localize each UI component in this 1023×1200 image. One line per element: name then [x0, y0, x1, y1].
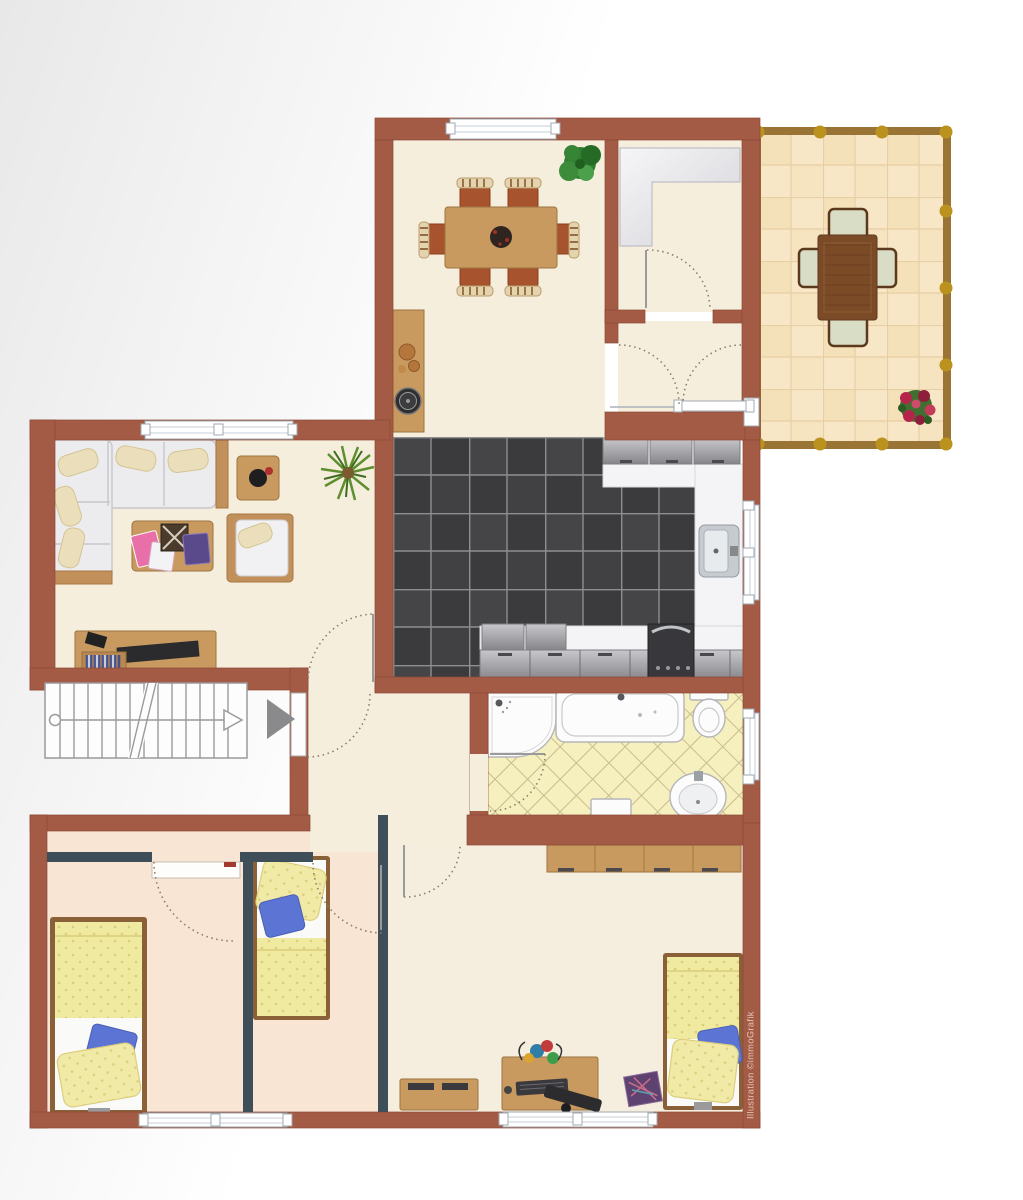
stairwell: [45, 683, 295, 758]
bedroom-left: [50, 917, 147, 1116]
floor-plan: Illustration ©immoGrafik: [0, 0, 1023, 1200]
bed: [50, 917, 147, 1116]
kitchenette-counter: [393, 310, 424, 432]
side-table: [237, 456, 279, 500]
mouse: [504, 1086, 512, 1094]
window-bathroom: [743, 709, 759, 784]
bedroom-middle: [253, 856, 330, 1020]
kitchen-appliance: [526, 624, 566, 650]
coffee-table: [131, 521, 213, 572]
window-kitchen: [743, 501, 759, 604]
armchair: [227, 514, 293, 582]
window-bedroom-main: [499, 1112, 657, 1127]
watermark: Illustration ©immoGrafik: [746, 1011, 756, 1119]
kitchen-stove: [648, 624, 694, 678]
window-dining: [446, 119, 560, 139]
terrace: [752, 126, 953, 451]
bed: [663, 953, 743, 1110]
window-bedrooms-left: [139, 1113, 292, 1127]
floor-plan-canvas: Illustration ©immoGrafik: [0, 0, 1023, 1200]
kitchen-base-cabinets: [480, 650, 743, 680]
wardrobe: [547, 845, 741, 872]
bathtub: [556, 686, 684, 742]
bed: [253, 856, 330, 1020]
dining-room-floor: [393, 140, 605, 437]
toilet: [690, 687, 728, 737]
dining-table: [445, 207, 557, 268]
sideboard: [400, 1079, 478, 1110]
hallway-floor: [308, 688, 470, 817]
kitchen-upper-cabinets: [603, 438, 740, 464]
kitchen-sink: [699, 525, 739, 577]
window-living-room: [141, 421, 297, 439]
kitchen-appliance: [482, 624, 524, 650]
sliding-door: [678, 401, 750, 411]
entrance-door: [291, 693, 306, 756]
terrace-table: [818, 235, 877, 320]
floor-picture: [624, 1071, 663, 1106]
